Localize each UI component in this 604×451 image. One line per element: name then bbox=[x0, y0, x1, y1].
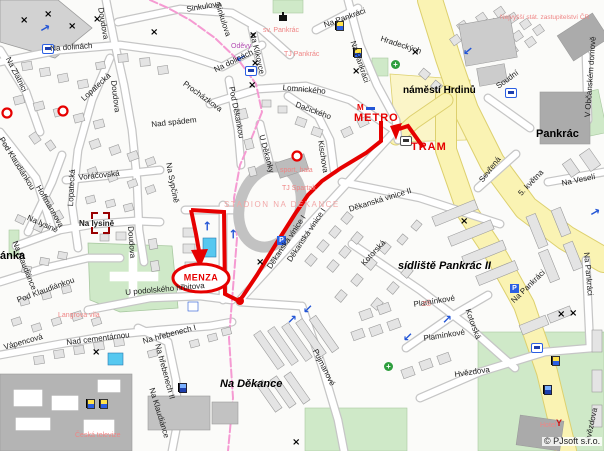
poi-label-sv-pankrac: sv. Pankrác bbox=[263, 27, 299, 34]
street-label-vapencova: Vápencová bbox=[3, 333, 44, 352]
poi-label-hotel: Hotel bbox=[540, 422, 556, 429]
street-label-5-kvetna: 5. května bbox=[517, 169, 545, 198]
street-label-sinkulova-2: Sinkulova bbox=[213, 2, 231, 37]
street-label-na-veseli: Na Veselí bbox=[561, 173, 596, 188]
poi-label-tj-pankrac: TJ Pankrác bbox=[284, 51, 319, 58]
street-label-na-pankraci-3: Na Pankráci bbox=[510, 269, 547, 305]
street-label-hradeckych: Hradeckých bbox=[380, 35, 423, 56]
district-label-anka: ánka bbox=[0, 251, 25, 262]
poi-label-tj-spartak: TJ Spartak bbox=[282, 185, 316, 192]
poi-label-langrova-vila: Langrova vila bbox=[58, 312, 100, 319]
district-label-pankrac: Pankrác bbox=[536, 129, 579, 140]
street-label-u-dekanky: U Děkanky bbox=[257, 134, 275, 174]
district-label-sidliste-pankrac-2: sídliště Pankrác II bbox=[398, 261, 491, 272]
street-label-nad-cementarnou: Nad cementárnou bbox=[66, 331, 130, 347]
street-label-plaminkove-2: Plamínkové bbox=[423, 328, 466, 342]
street-label-na-dolinach: Na dolinách bbox=[50, 42, 93, 53]
street-label-u-podolskeho-hrbitova: U podolského hřbitova bbox=[125, 282, 205, 297]
street-label-pod-klaudiankou: Pod Klaudiánkou bbox=[0, 136, 36, 192]
street-label-na-sypcine: Na Sypčině bbox=[164, 162, 180, 204]
map-canvas[interactable]: PP++YM××××××××××××××××→→→→→→→→→→ Sinkulo… bbox=[0, 0, 604, 451]
street-label-lopatecka-2: Lopatecká bbox=[67, 169, 77, 206]
street-label-na-dolinach-2: Na dolinách bbox=[213, 48, 254, 74]
street-label-pujmanove: Pujmanové bbox=[311, 348, 336, 387]
street-label-sevrena: Sevřená bbox=[478, 156, 503, 184]
street-label-na-klaudiance: Na Klaudiánce bbox=[11, 240, 38, 291]
street-label-dekanska-vinice-2: Děkanská vinice II bbox=[348, 187, 412, 214]
street-label-voracovska: Voráčovská bbox=[78, 170, 120, 182]
street-label-na-hrebenech-1: Na hřebenech I bbox=[142, 324, 197, 346]
street-label-na-lysine-2: Na lysině bbox=[79, 220, 114, 228]
route-label-menza: MENZA bbox=[184, 274, 219, 283]
poi-label-ceska-televize: Česká televize bbox=[75, 432, 121, 439]
street-label-lomnickeho: Lomnického bbox=[282, 84, 326, 96]
poi-label-zs: ZŠ bbox=[422, 301, 431, 308]
street-label-na-pankraci: Na Pankráci bbox=[323, 7, 367, 29]
map-labels-layer: Sinkulova Sinkulova Doudova Doudova Doud… bbox=[0, 0, 604, 451]
street-label-v-obcanskem-domove: V Občanském domově bbox=[584, 36, 598, 117]
street-label-lopatecka: Lopatecká bbox=[80, 72, 112, 103]
street-label-prochazkova: Procházkova bbox=[181, 80, 223, 114]
street-label-kotorska-2: Kotorská bbox=[463, 308, 481, 340]
street-label-kotorska: Kotorská bbox=[360, 239, 387, 268]
street-label-plaminkove: Plamínkové bbox=[413, 294, 456, 308]
street-label-doudova: Doudova bbox=[96, 7, 109, 40]
street-label-kischova: Kischova bbox=[316, 140, 329, 173]
street-label-doudova-2: Doudova bbox=[109, 80, 121, 113]
street-label-doudova-3: Doudova bbox=[126, 226, 136, 259]
poi-label-odevy: Oděvy bbox=[231, 43, 251, 50]
route-label-tram: TRAM bbox=[411, 142, 447, 153]
street-label-soudni: Soudní bbox=[495, 69, 520, 90]
copyright-label: © PJsoft s.r.o. bbox=[542, 437, 602, 446]
street-label-dacickeho: Dačického bbox=[294, 101, 332, 121]
poi-label-zastupitelstvi: Nejvyšší stát. zastupitelství ČR bbox=[500, 15, 589, 22]
street-label-na-zlatnici: Na Zlatnici bbox=[4, 56, 28, 93]
poi-label-sport-hala: sport. hala bbox=[280, 167, 313, 174]
street-label-pod-dekankou: Pod Děkankou bbox=[227, 86, 245, 139]
street-label-na-pankraci-2: Na Pankráci bbox=[348, 40, 370, 84]
route-label-metro: METRO bbox=[354, 113, 399, 124]
street-label-na-pankraci-4: Na Pankráci bbox=[582, 252, 594, 296]
street-label-hvezdova: Hvězdova bbox=[454, 366, 490, 379]
street-label-nad-spadem: Nad spádem bbox=[151, 116, 197, 129]
district-label-na-dekance: Na Děkance bbox=[220, 379, 282, 390]
district-label-namesti-hrdinu: náměstí Hrdinů bbox=[403, 86, 476, 96]
poi-label-stadion-na-dekance: STADION NA DĚKANCE bbox=[224, 201, 340, 209]
